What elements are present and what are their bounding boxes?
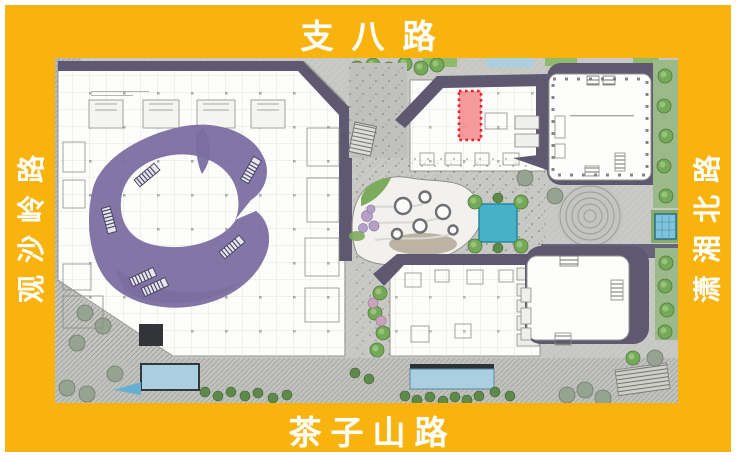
road-label-west-wrap: 观沙岭路 xyxy=(5,5,55,452)
southeast-building xyxy=(521,246,649,345)
north-building xyxy=(395,74,547,171)
mall-entrance xyxy=(139,324,163,346)
road-label-east-wrap: 潇湘北路 xyxy=(681,5,731,452)
skylight xyxy=(651,210,678,243)
road-label-east: 潇湘北路 xyxy=(686,142,726,314)
plan-drawing xyxy=(55,58,678,403)
northeast-tower xyxy=(547,63,670,185)
site-plan-image: 支八路 茶子山路 观沙岭路 潇湘北路 xyxy=(0,0,736,458)
south-building xyxy=(368,254,541,357)
road-label-west: 观沙岭路 xyxy=(10,142,50,314)
road-label-north: 支八路 xyxy=(0,10,736,58)
north-walkway xyxy=(349,63,407,158)
road-label-south: 茶子山路 xyxy=(0,406,736,454)
site-plan-map xyxy=(55,58,678,403)
circular-plaza xyxy=(557,183,623,249)
east-greenery xyxy=(651,60,678,340)
highlight-unit xyxy=(459,91,481,140)
